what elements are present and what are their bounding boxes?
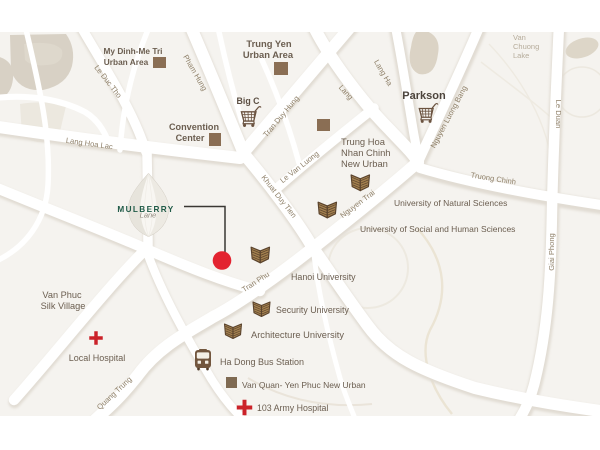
svg-text:Urban Area: Urban Area bbox=[243, 49, 294, 60]
svg-text:Local Hospital: Local Hospital bbox=[69, 353, 126, 363]
svg-text:Le Duan: Le Duan bbox=[554, 100, 563, 129]
svg-text:Trung Yen: Trung Yen bbox=[246, 38, 291, 49]
svg-text:103 Army Hospital: 103 Army Hospital bbox=[257, 403, 328, 413]
svg-text:University of Social and Human: University of Social and Human Sciences bbox=[360, 224, 515, 234]
svg-text:My Dinh-Me Tri: My Dinh-Me Tri bbox=[103, 46, 162, 56]
svg-text:Center: Center bbox=[176, 133, 205, 143]
svg-text:Parkson: Parkson bbox=[402, 90, 446, 102]
svg-text:University of Natural Sciences: University of Natural Sciences bbox=[394, 198, 507, 208]
svg-text:Trung Hoa: Trung Hoa bbox=[341, 136, 386, 147]
svg-text:Lane: Lane bbox=[140, 211, 157, 220]
svg-text:Nhan Chinh: Nhan Chinh bbox=[341, 147, 391, 158]
svg-text:Van: Van bbox=[513, 33, 526, 42]
svg-text:Ha Dong Bus Station: Ha Dong Bus Station bbox=[220, 357, 304, 367]
svg-text:Van Quan- Yen Phuc New Urban: Van Quan- Yen Phuc New Urban bbox=[242, 380, 366, 390]
svg-text:Chuong: Chuong bbox=[513, 42, 539, 51]
svg-text:Hanoi University: Hanoi University bbox=[291, 272, 356, 282]
svg-text:Lake: Lake bbox=[513, 51, 529, 60]
svg-text:New Urban: New Urban bbox=[341, 158, 388, 169]
svg-text:Architecture University: Architecture University bbox=[251, 330, 344, 340]
svg-text:Silk Village: Silk Village bbox=[41, 301, 86, 311]
svg-text:Urban Area: Urban Area bbox=[104, 57, 149, 67]
svg-text:Big C: Big C bbox=[237, 96, 261, 106]
svg-text:Security University: Security University bbox=[276, 305, 349, 315]
svg-text:Van Phuc: Van Phuc bbox=[42, 290, 82, 300]
svg-text:Giai Phong: Giai Phong bbox=[547, 233, 556, 271]
svg-text:Convention: Convention bbox=[169, 122, 219, 132]
